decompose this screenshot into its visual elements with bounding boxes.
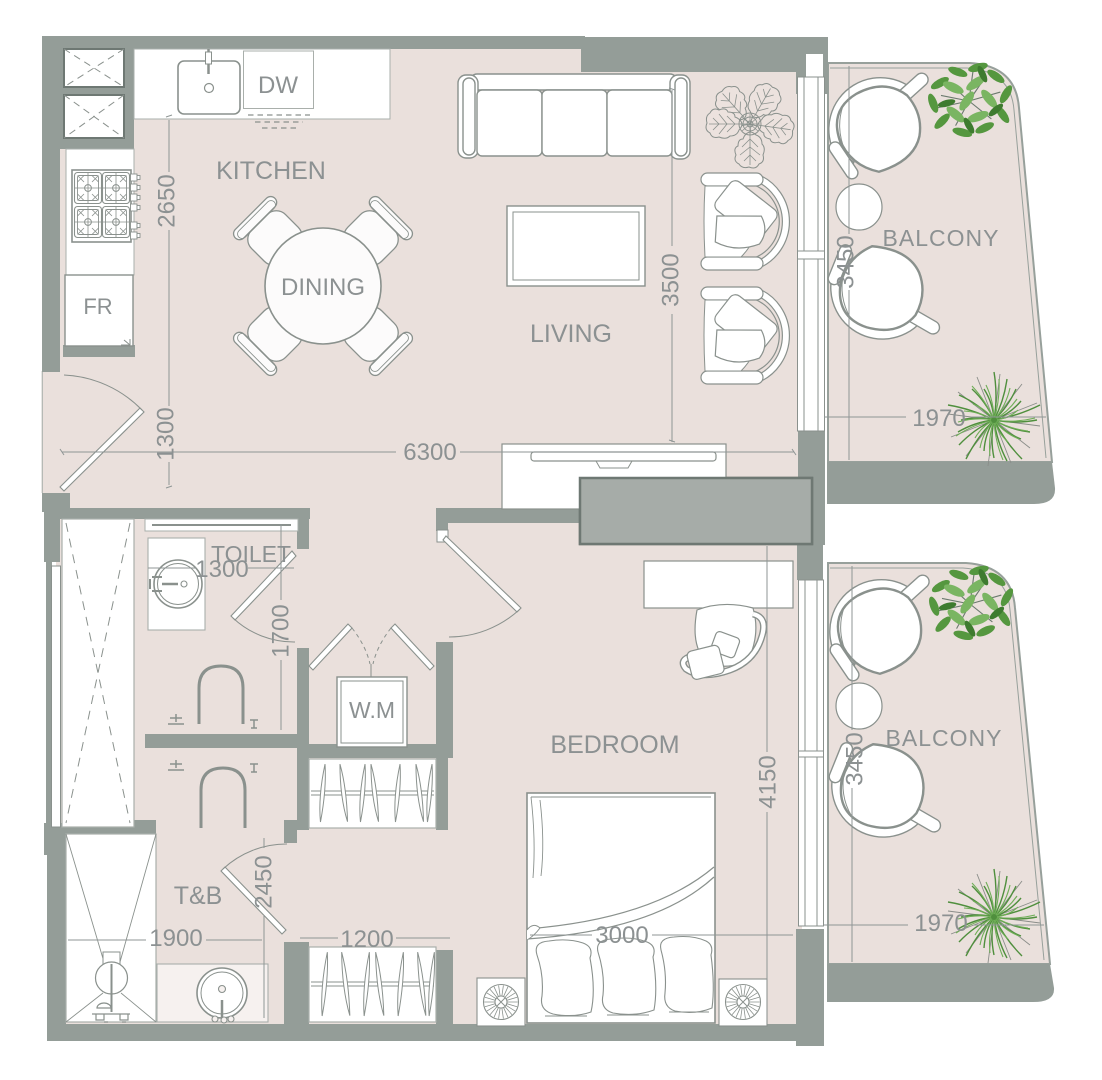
svg-text:W.M: W.M xyxy=(349,697,395,723)
svg-text:1970: 1970 xyxy=(914,910,967,937)
svg-text:3000: 3000 xyxy=(595,922,648,949)
svg-text:T&B: T&B xyxy=(174,882,223,910)
svg-text:BALCONY: BALCONY xyxy=(883,225,1000,251)
svg-text:3450: 3450 xyxy=(842,732,869,785)
svg-text:BALCONY: BALCONY xyxy=(886,725,1003,751)
svg-text:FR: FR xyxy=(83,294,112,319)
svg-text:BEDROOM: BEDROOM xyxy=(550,731,679,759)
svg-text:6300: 6300 xyxy=(403,439,456,466)
svg-text:1970: 1970 xyxy=(912,405,965,432)
svg-text:DINING: DINING xyxy=(281,274,365,301)
svg-text:1900: 1900 xyxy=(149,925,202,952)
svg-text:3450: 3450 xyxy=(833,235,860,288)
svg-text:1300: 1300 xyxy=(153,407,180,460)
svg-text:DW: DW xyxy=(258,72,298,99)
svg-text:3500: 3500 xyxy=(658,253,685,306)
svg-text:1700: 1700 xyxy=(268,604,295,657)
svg-text:LIVING: LIVING xyxy=(530,320,612,348)
svg-text:2650: 2650 xyxy=(154,174,181,227)
svg-text:2450: 2450 xyxy=(251,855,278,908)
svg-text:1300: 1300 xyxy=(195,556,248,583)
svg-text:4150: 4150 xyxy=(755,755,782,808)
svg-text:KITCHEN: KITCHEN xyxy=(216,157,326,185)
svg-text:1200: 1200 xyxy=(340,926,393,953)
